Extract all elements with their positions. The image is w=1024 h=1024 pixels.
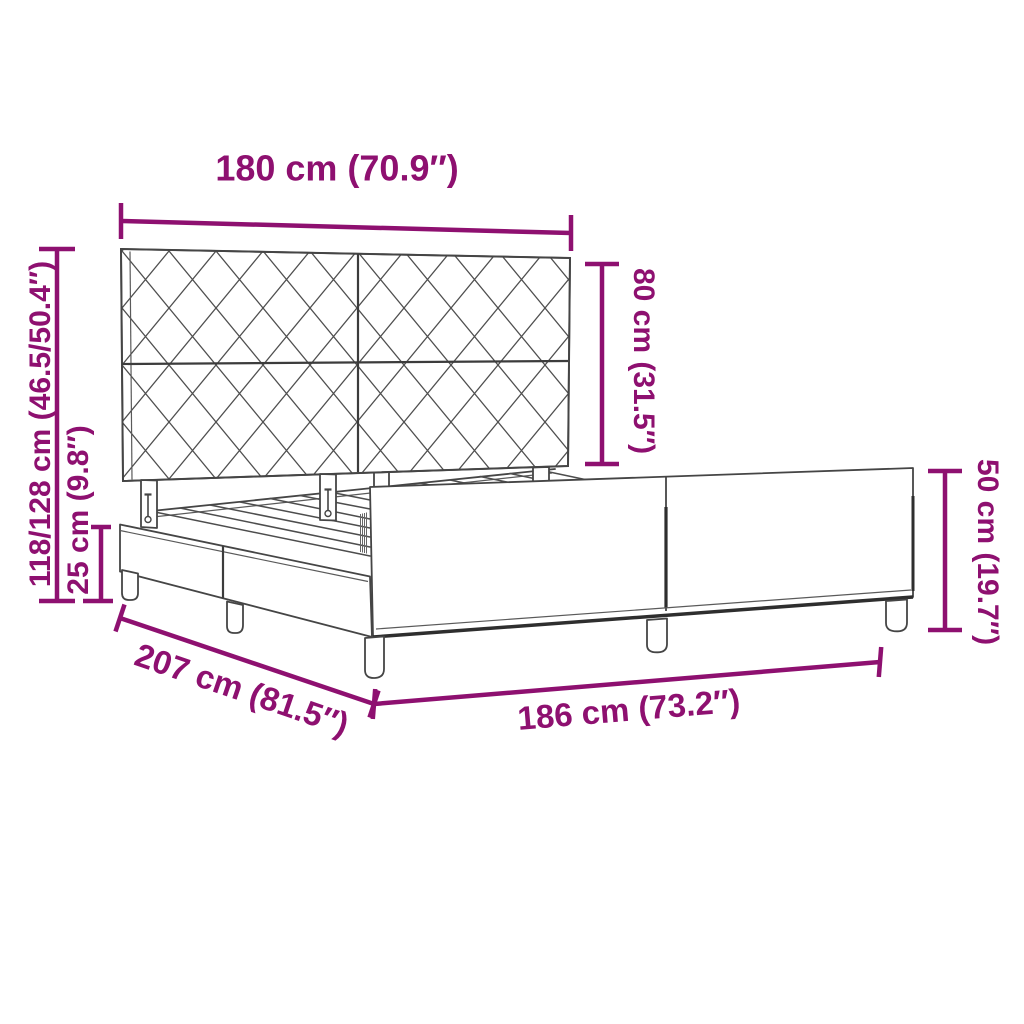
foot-end-panel — [370, 468, 913, 637]
dimension-headboard-panel-height-line — [585, 264, 619, 464]
label-headboard-total-height: 118/128 cm (46.5/50.4″) — [24, 261, 57, 587]
headboard-rear-leg-right — [533, 467, 549, 482]
dimension-headboard-width-line — [121, 203, 571, 251]
diagram-canvas: 180 cm (70.9″) 80 cm (31.5″) 118/128 cm … — [0, 0, 1024, 1024]
left-side-rail — [120, 525, 372, 638]
screw-knob-icon — [325, 511, 331, 517]
dimension-diagram: 180 cm (70.9″) 80 cm (31.5″) 118/128 cm … — [0, 0, 1024, 1024]
foot-panel-leg-left — [365, 637, 384, 679]
headboard-front-leg-right — [320, 474, 336, 521]
dimension-foot-end-height-line — [928, 471, 962, 630]
side-rail-leg-left — [122, 570, 138, 600]
foot-panel-leg-right — [886, 600, 907, 632]
headboard-front-leg-left — [141, 480, 157, 528]
headboard-rear-leg-left — [374, 472, 389, 487]
label-foot-end-height: 50 cm (19.7″) — [971, 459, 1004, 645]
side-rail-leg-right — [227, 602, 243, 634]
label-frame-length: 207 cm (81.5″) — [130, 636, 353, 743]
foot-panel-leg-middle — [647, 619, 667, 653]
screw-knob-icon — [145, 517, 151, 523]
label-frame-side-height: 25 cm (9.8″) — [62, 425, 95, 594]
headboard-diamond-pattern — [121, 249, 570, 481]
label-headboard-width: 180 cm (70.9″) — [215, 148, 458, 189]
bed-frame-drawing — [120, 249, 913, 678]
headboard — [121, 249, 570, 481]
label-headboard-panel-height: 80 cm (31.5″) — [627, 268, 660, 454]
